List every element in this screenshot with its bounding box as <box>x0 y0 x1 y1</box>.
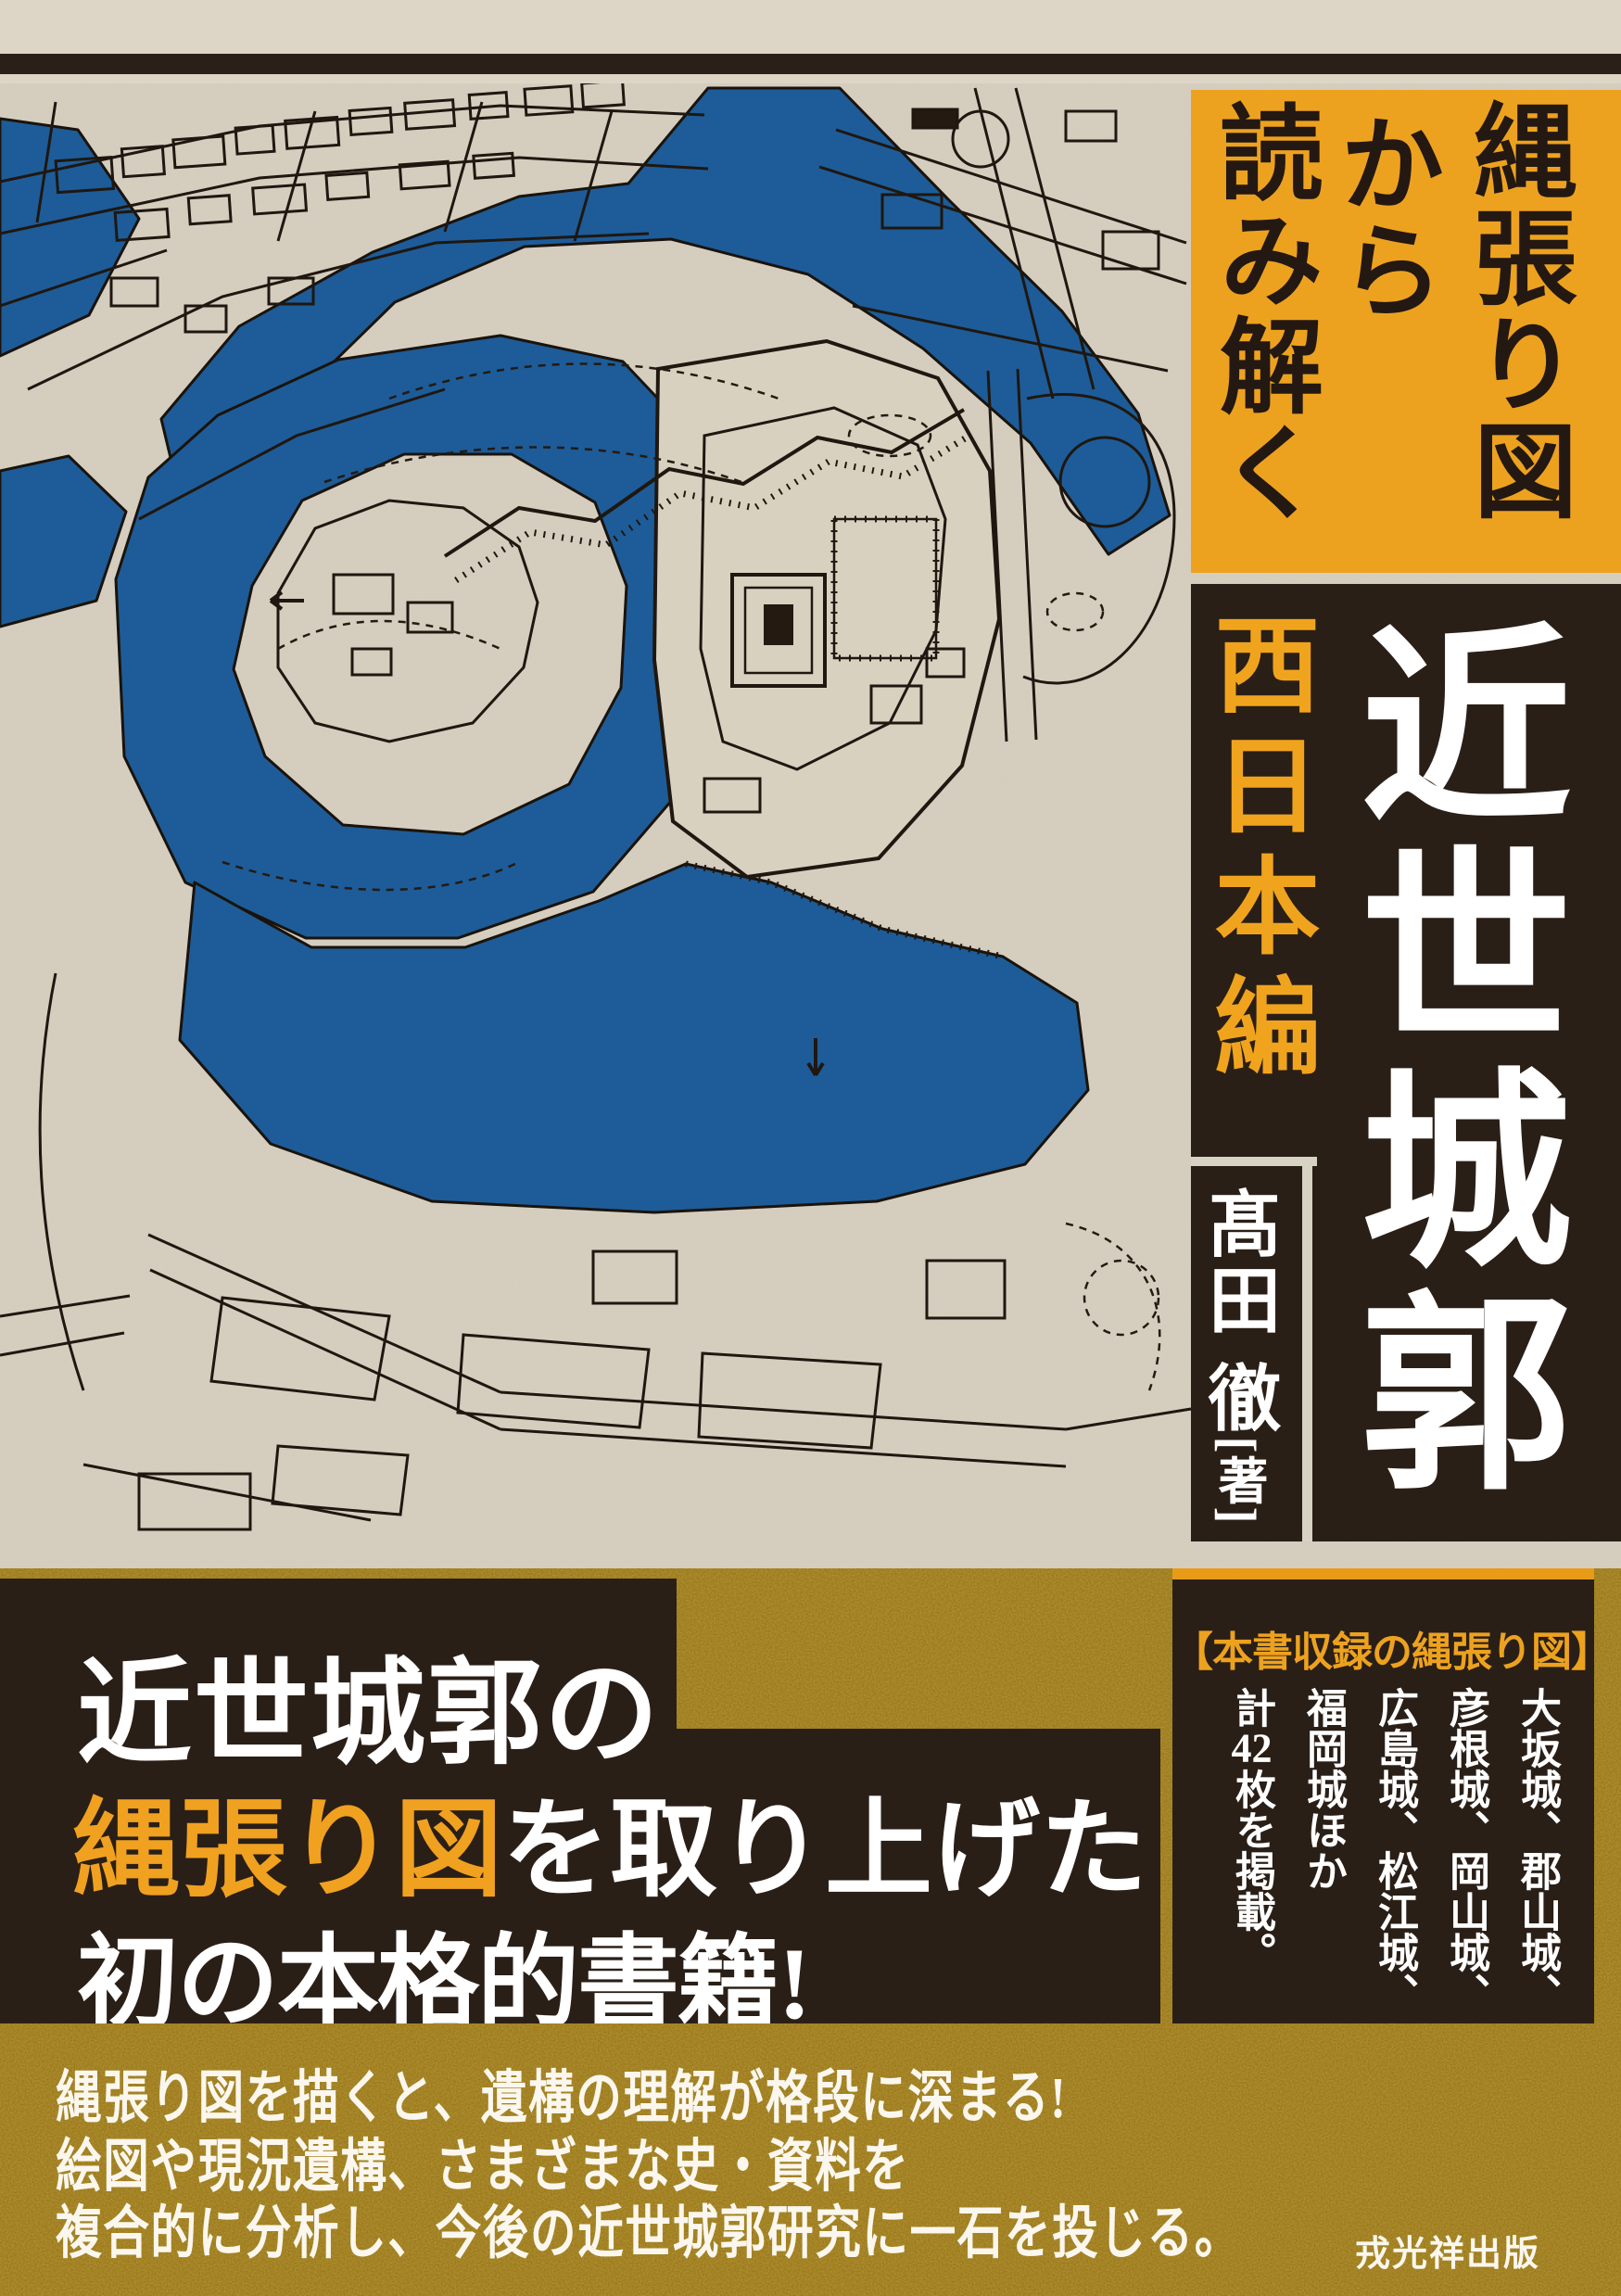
castle-list-column: 彦根城、岡山城、 <box>1445 1687 1486 2013</box>
top-accent-bar <box>0 54 1621 74</box>
main-title: 近世城郭 <box>1339 615 1551 1505</box>
count-prefix: 計 <box>1229 1687 1274 1728</box>
catch-line-1: 近世城郭の <box>77 1619 661 1786</box>
castle-list-column: 広島城、松江城、 <box>1374 1687 1414 2013</box>
count-suffix: 枚を掲載。 <box>1229 1769 1274 1973</box>
blurb-line-3: 複合的に分析し、今後の近世城郭研究に一石を投じる。 <box>56 2186 1242 2269</box>
castle-list: 大坂城、郡山城、 彦根城、岡山城、 広島城、松江城、 福岡城ほか 計42枚を掲載… <box>1200 1687 1557 2013</box>
author-block: 髙田 徹[著] <box>1202 1186 1274 1525</box>
catch-line-2: 縄張り図を取り上げた <box>72 1762 1147 1918</box>
castle-list-column: 大坂城、郡山城、 <box>1516 1687 1557 2013</box>
included-maps-box: 【本書収録の縄張り図】 大坂城、郡山城、 彦根城、岡山城、 広島城、松江城、 福… <box>1172 1579 1594 2023</box>
title-panel: 近世城郭 西日本編 髙田 徹[著] <box>1191 584 1621 1541</box>
series-title-line-1: 縄張り図 <box>1463 97 1567 524</box>
edition-label: 西日本編 <box>1204 610 1310 1092</box>
count-number: 42 <box>1229 1728 1274 1769</box>
series-title-box: 縄張り図 から 読み解く <box>1191 90 1621 573</box>
included-maps-header: 【本書収録の縄張り図】 <box>1172 1618 1594 1678</box>
author-name: 髙田 徹 <box>1198 1186 1279 1437</box>
catch-line-2-rest: を取り上げた <box>502 1792 1147 1910</box>
author-frame-vertical <box>1302 1157 1312 1541</box>
series-title-line-3: 読み解く <box>1209 99 1313 526</box>
series-title-line-2: から <box>1330 110 1434 323</box>
author-frame-horizontal <box>1191 1157 1317 1166</box>
author-role: [著] <box>1210 1437 1266 1526</box>
included-box-top-border <box>1172 1568 1594 1579</box>
castle-list-column: 福岡城ほか <box>1302 1687 1343 2013</box>
castle-count-column: 計42枚を掲載。 <box>1231 1687 1272 2013</box>
book-cover: 縄張り図 から 読み解く 近世城郭 西日本編 髙田 徹[著] 近世城郭の 縄張り… <box>0 0 1621 2296</box>
publisher-name: 戎光祥出版 <box>1355 2225 1540 2276</box>
catch-highlight: 縄張り図 <box>72 1792 502 1910</box>
